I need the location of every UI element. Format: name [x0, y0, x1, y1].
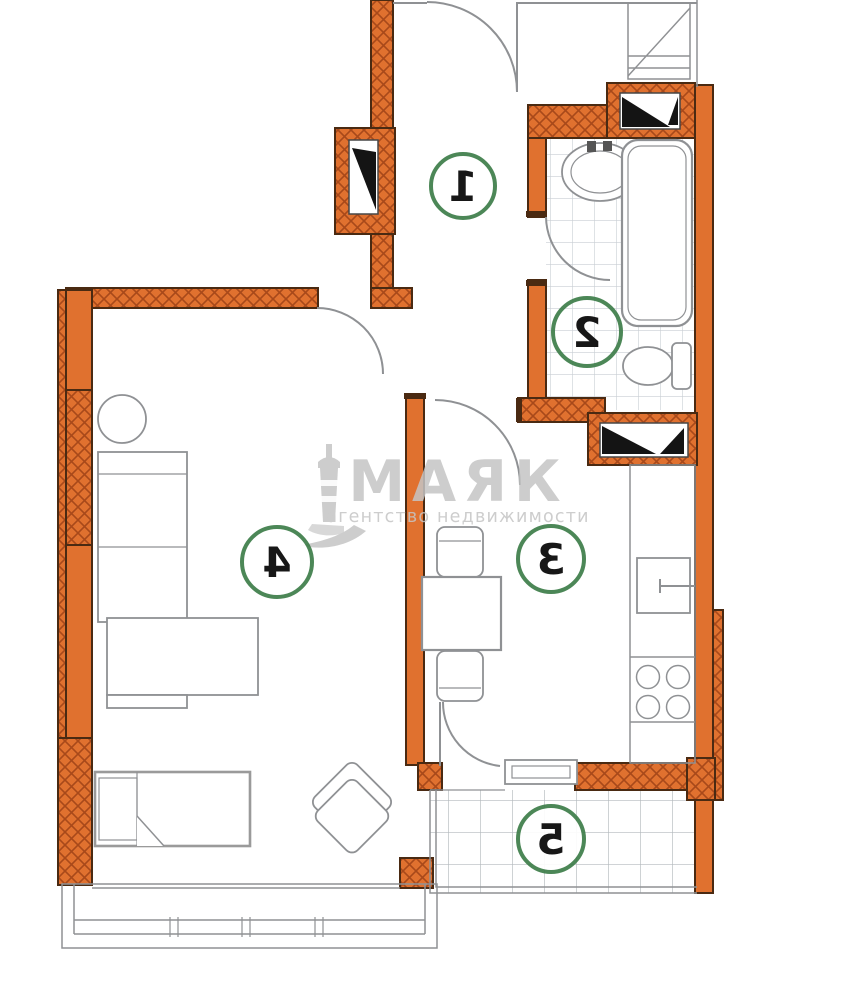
wall-cap	[526, 211, 546, 217]
kitchen-bottom-wall	[575, 763, 697, 790]
ventilation-shaft-hallway	[335, 128, 395, 234]
wall-cap	[526, 280, 546, 286]
wall-cap	[404, 393, 426, 399]
hallway-left-wall-upper	[371, 0, 393, 132]
entry-door-arc	[427, 2, 517, 92]
toilet	[623, 343, 691, 389]
ventilation-shaft-bathroom	[607, 83, 695, 138]
watermark-brand: МАЯК	[348, 449, 567, 515]
kitchen-counter	[630, 465, 695, 763]
ventilation-shaft-kitchen	[588, 413, 697, 465]
round-table	[98, 395, 146, 443]
wall-cap	[516, 398, 522, 422]
left-wall-solid-upper	[66, 290, 92, 390]
dining-table	[422, 577, 501, 650]
balcony-door-arc	[443, 702, 500, 766]
chair	[437, 651, 483, 701]
room-number: 1	[448, 162, 477, 211]
stove	[630, 657, 695, 722]
chair	[437, 527, 483, 577]
room-label-1: 1	[431, 154, 495, 218]
loggia-glazing	[62, 884, 437, 948]
bathroom-left-wall-lower	[528, 280, 546, 410]
room-number: 4	[262, 538, 291, 587]
room-label-3: 3	[518, 526, 584, 592]
room-number: 5	[536, 815, 565, 864]
room-label-4: 4	[242, 527, 312, 597]
armchair	[304, 760, 400, 856]
bathroom-left-wall-upper	[528, 130, 546, 217]
left-wall-solid-lower	[66, 545, 92, 738]
room-label-5: 5	[518, 806, 584, 872]
floor-plan: МАЯК агентство недвижимости 1 2 3 4 5	[0, 0, 857, 1000]
bed	[95, 772, 250, 846]
corner-sofa	[98, 452, 258, 708]
living-room-door-arc	[317, 308, 383, 374]
kitchen-bottom-left-pier	[418, 763, 442, 790]
balcony-right-pier	[687, 758, 715, 800]
room-number: 3	[536, 535, 565, 584]
room-number: 2	[572, 308, 601, 357]
bathtub	[622, 140, 692, 326]
faucet-icon	[603, 141, 612, 151]
faucet-icon	[587, 141, 596, 152]
wardrobe	[628, 3, 690, 79]
watermark-subtitle: агентство недвижимости	[326, 507, 589, 527]
hallway-corner-wall	[371, 288, 412, 308]
floor-plan-svg: МАЯК агентство недвижимости 1 2 3 4 5	[0, 0, 857, 1000]
living-room-top-wall	[66, 288, 318, 308]
left-bottom-pier	[58, 738, 92, 885]
dining-set	[422, 527, 501, 701]
left-wall-window-pier	[66, 390, 92, 545]
kitchen-balcony-window	[505, 760, 577, 784]
